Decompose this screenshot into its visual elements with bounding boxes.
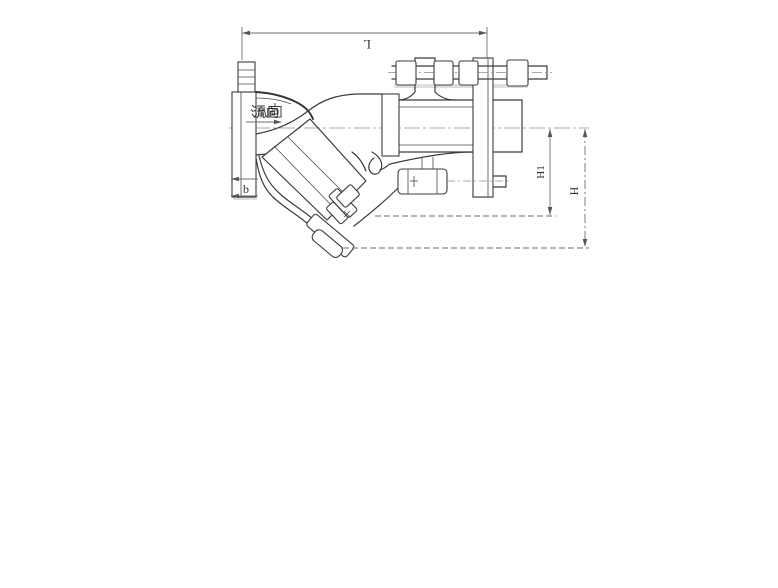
height1-label: H1 [535, 165, 547, 178]
drawing-canvas: 流向 L b H1 [0, 0, 778, 588]
bottom-cap [306, 213, 355, 259]
leg-union [326, 184, 360, 224]
bolt-nut [396, 61, 416, 85]
strainer-body [256, 92, 473, 226]
bolt-nut [434, 61, 453, 85]
length-label: L [363, 37, 371, 52]
inlet-flange [232, 62, 256, 197]
height-label: H [567, 186, 581, 195]
outlet-pipe [399, 100, 522, 152]
thickness-label: b [243, 182, 249, 196]
dimension-length-L: L [242, 27, 487, 60]
flow-text: 流向 [253, 105, 279, 120]
bolt-nut [459, 61, 478, 85]
body-outlet-flange [382, 94, 399, 156]
top-bolt-assembly [388, 58, 552, 100]
inlet-flange-bolt [238, 62, 255, 92]
strainer-technical-drawing: 流向 L b H1 [0, 0, 778, 588]
bolt-nut [507, 60, 528, 86]
dimension-height-H: H [343, 129, 589, 248]
